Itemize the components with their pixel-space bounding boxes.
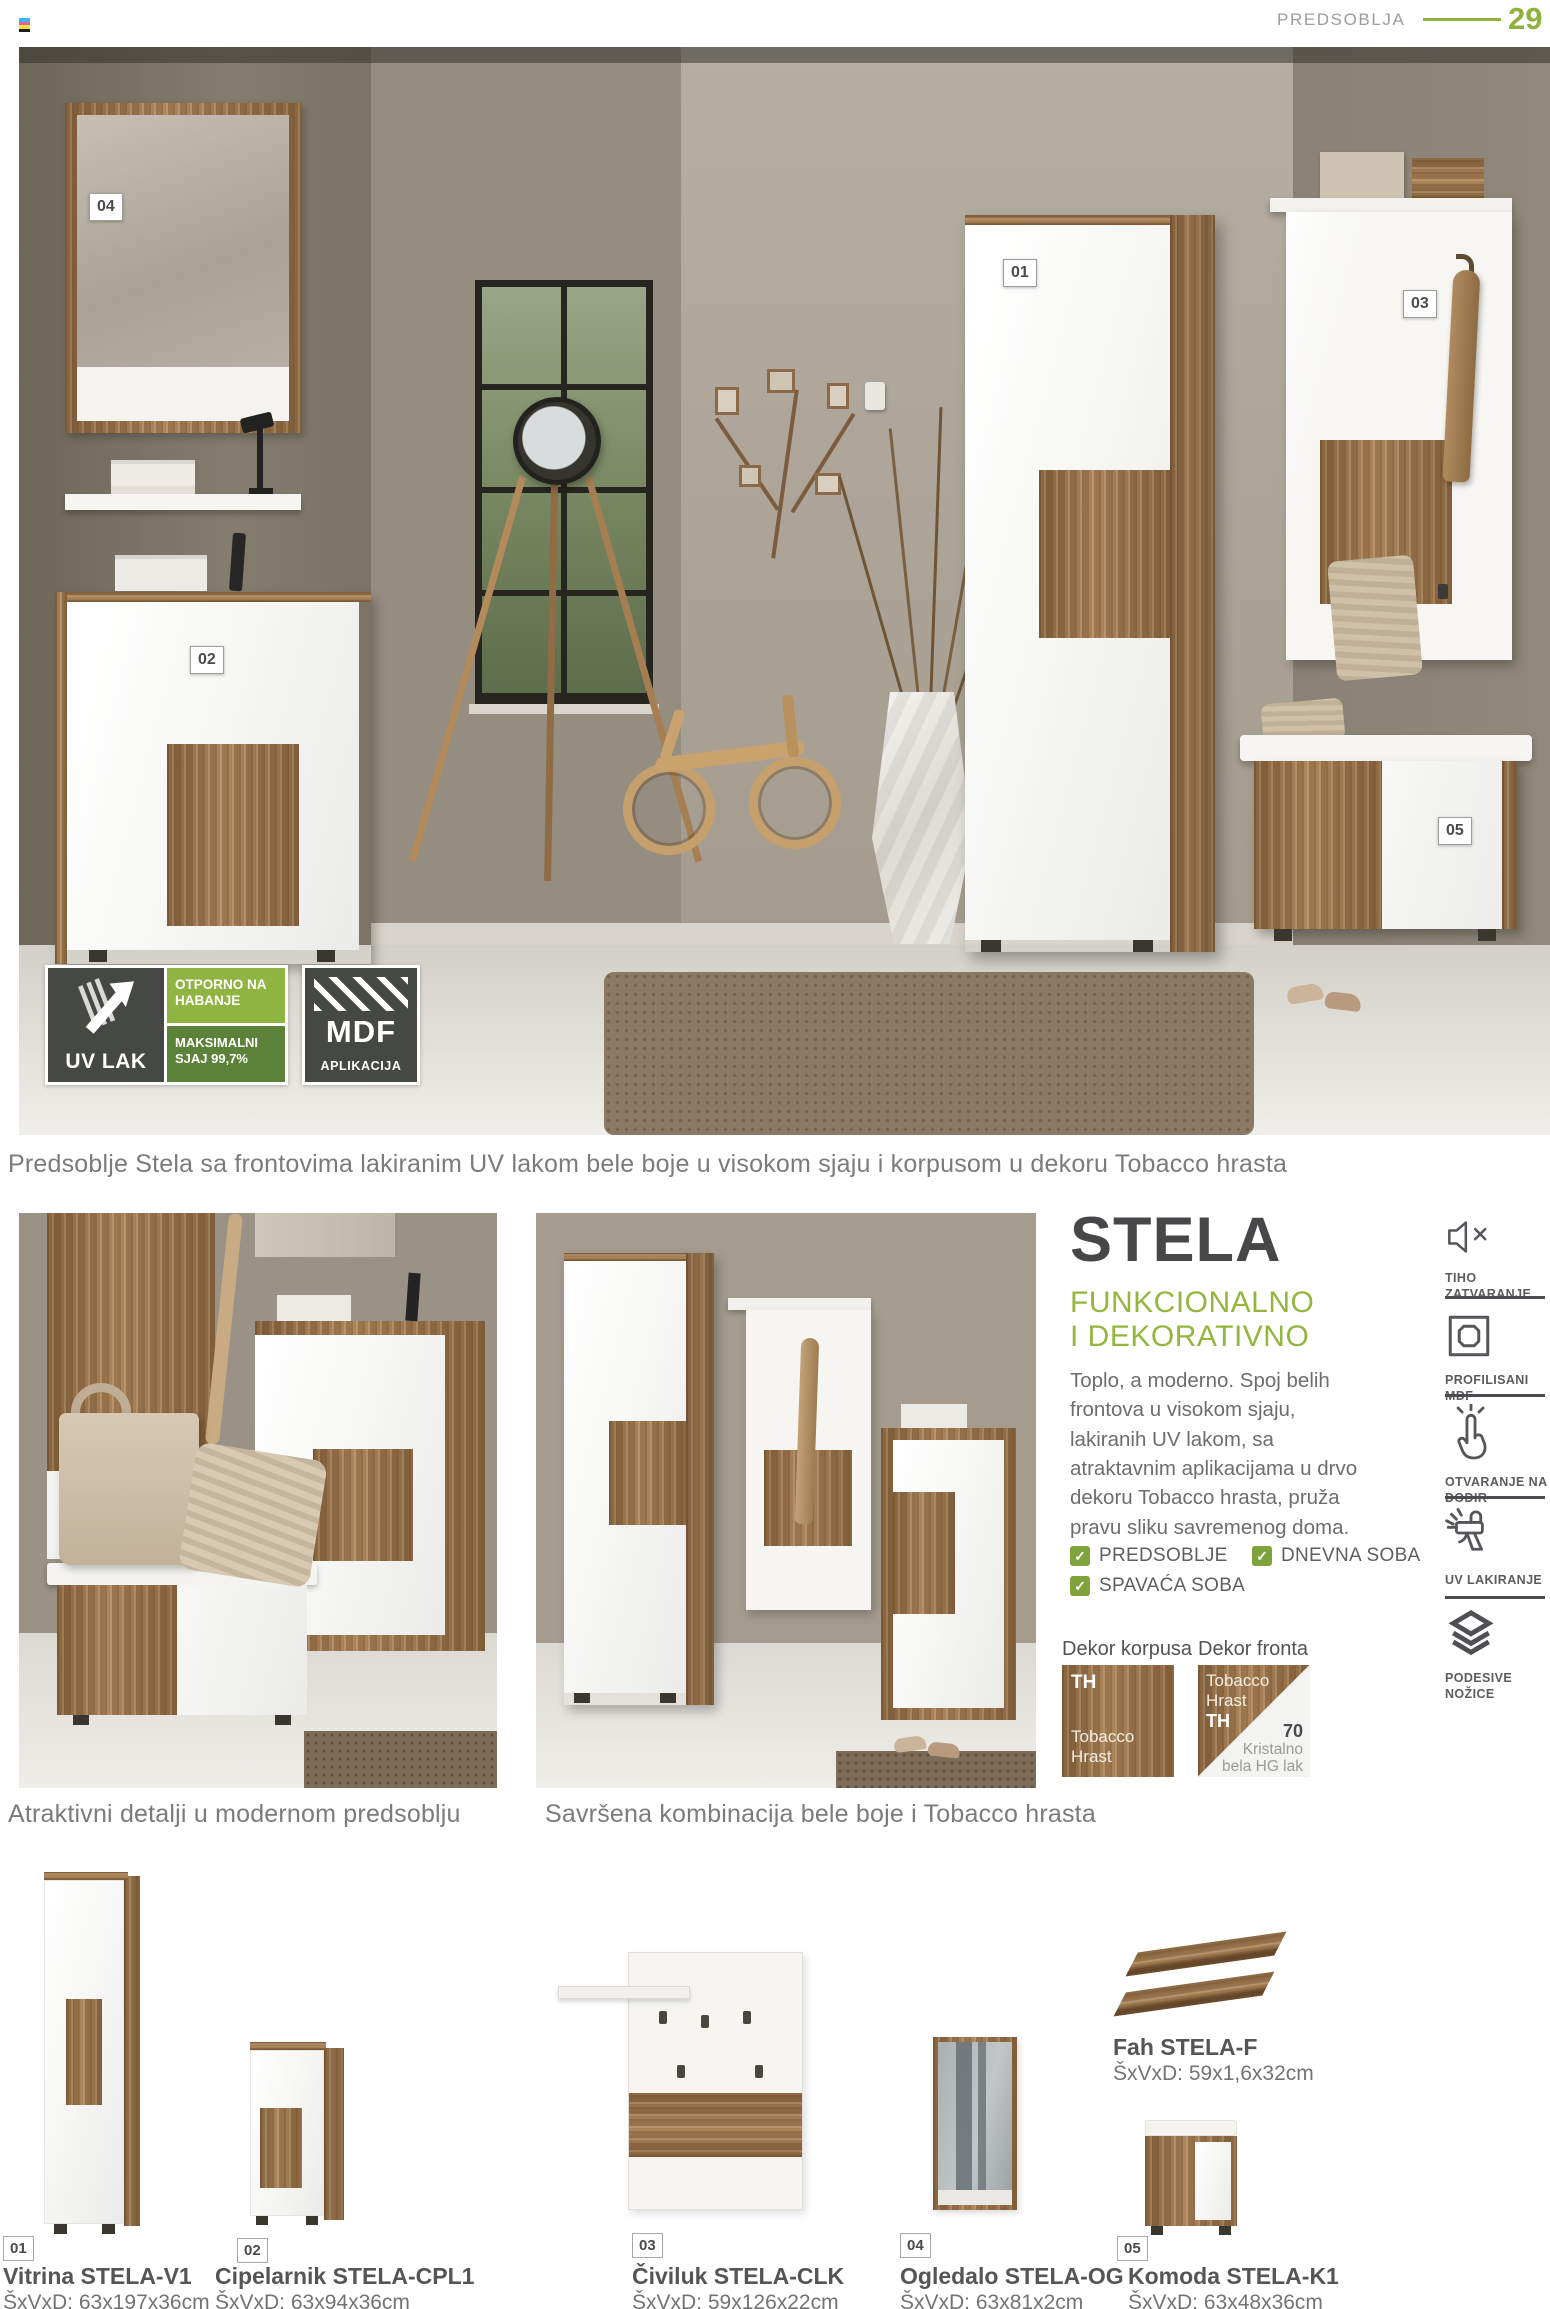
- dekor-fronta-heading: Dekor fronta: [1198, 1638, 1308, 1661]
- product-dims-fah: ŠxVxD: 59x1,6x32cm: [1113, 2062, 1314, 2086]
- room-predsoblje: ✓ PREDSOBLJE: [1070, 1545, 1228, 1567]
- product-dims: ŠxVxD: 63x197x36cm: [3, 2291, 210, 2309]
- photo-phone: [405, 1273, 420, 1322]
- spray-gun-icon: [1445, 1506, 1497, 1560]
- dekor-korpusa-swatch: TH Tobacco Hrast: [1062, 1665, 1174, 1777]
- vitrina-applique: [66, 1999, 102, 2105]
- cabinet-foot: [317, 950, 335, 962]
- desk-lamp-stem: [257, 425, 263, 491]
- civiluk-hook: [659, 2011, 667, 2024]
- photo-wardrobe-foot: [574, 1693, 590, 1703]
- feature-label: PODESIVE NOŽICE: [1445, 1670, 1549, 1703]
- wardrobe-foot: [1133, 940, 1153, 952]
- collection-subtitle-2: I DEKORATIVNO: [1070, 1320, 1309, 1354]
- hero-tag-03: 03: [1403, 290, 1437, 318]
- feature-adjustable-feet: PODESIVE NOŽICE: [1445, 1608, 1549, 1703]
- photo-bench-foot: [73, 1715, 89, 1725]
- mini-frame: [739, 465, 761, 487]
- light-switch: [865, 382, 885, 410]
- bench: [1240, 735, 1532, 960]
- mirror-glass: [77, 115, 289, 367]
- product-name: Čiviluk STELA-CLK: [632, 2263, 844, 2290]
- photo-bench: [47, 1563, 317, 1743]
- mirror-reflection-dark: [956, 2042, 972, 2205]
- room-label: PREDSOBLJE: [1099, 1545, 1228, 1567]
- bench-seat: [1240, 735, 1532, 761]
- korpus-name: Tobacco Hrast: [1071, 1727, 1151, 1766]
- desk-lamp-base: [249, 488, 273, 494]
- reg-black: [19, 29, 30, 33]
- mirror-reflection: [978, 2042, 986, 2205]
- mini-frame: [827, 383, 849, 409]
- product-image-ogledalo: [933, 2037, 1017, 2210]
- product-name: Ogledalo STELA-OG: [900, 2263, 1124, 2290]
- mirror-strip: [255, 1213, 395, 1257]
- cipelarnik-applique: [260, 2108, 302, 2188]
- feature-touch-opening: OTVARANJE NA DODIR: [1445, 1404, 1549, 1507]
- wall-tree-decor: [695, 369, 880, 569]
- window: [475, 280, 653, 704]
- bench-side: [1502, 761, 1518, 929]
- feature-separator: [1445, 1496, 1545, 1499]
- komoda-seat: [1145, 2120, 1237, 2136]
- cipelarnik-foot: [256, 2216, 268, 2225]
- dekor-fronta-swatch: Tobacco Hrast TH 70 Kristalno bela HG la…: [1198, 1665, 1310, 1777]
- civiluk-hook: [701, 2015, 709, 2028]
- gallery-caption-left: Atraktivni detalji u modernom predsoblju: [8, 1800, 461, 1829]
- branch: [715, 417, 780, 510]
- section-title: PREDSOBLJA: [1277, 10, 1405, 30]
- dekor-korpusa-heading: Dekor korpusa: [1062, 1638, 1192, 1661]
- rug: [604, 972, 1254, 1135]
- tripod-lamp-head: [513, 397, 601, 485]
- photo-small-cabinet: [881, 1428, 1016, 1720]
- hero-tag-05: 05: [1438, 817, 1472, 845]
- uv-lak-claims: OTPORNO NA HABANJE MAKSIMALNI SJAJ 99,7%: [167, 968, 285, 1082]
- catalog-page: PREDSOBLJA 29: [0, 0, 1550, 2309]
- fah-plank: [1126, 1932, 1287, 1977]
- civiluk-shelf: [558, 1986, 690, 1999]
- wardrobe-side: [1170, 215, 1215, 952]
- hero-tag-04: 04: [89, 193, 123, 221]
- wall-shelf: [65, 494, 301, 510]
- books-on-cabinet: [115, 555, 207, 591]
- room-dnevna-soba: ✓ DNEVNA SOBA: [1252, 1545, 1421, 1567]
- korpus-code: TH: [1071, 1672, 1096, 1694]
- uv-claim-2: MAKSIMALNI SJAJ 99,7%: [167, 1026, 285, 1082]
- hero-photo: 04 01 03 02 05 UV LAK OTPORNO NA HABANJE…: [19, 47, 1550, 1135]
- bench-body: [1254, 761, 1518, 929]
- wardrobe-top-edge: [965, 215, 1170, 225]
- mini-frame: [715, 387, 739, 415]
- ogledalo-glass: [938, 2042, 1012, 2205]
- product-name: Komoda STELA-K1: [1128, 2263, 1339, 2290]
- product-dims: ŠxVxD: 63x94x36cm: [215, 2291, 410, 2309]
- vitrina-foot: [54, 2224, 67, 2234]
- product-name: Cipelarnik STELA-CPL1: [215, 2263, 474, 2290]
- photo-books: [277, 1295, 351, 1321]
- product-dims: ŠxVxD: 59x126x22cm: [632, 2291, 839, 2309]
- fronta-bottom-name: Kristalno bela HG lak: [1211, 1741, 1303, 1775]
- storage-box-wood: [1412, 158, 1484, 198]
- bench-foot: [1274, 929, 1292, 941]
- tote-bag: [59, 1413, 199, 1565]
- vitrina-foot: [102, 2224, 115, 2234]
- room-label: SPAVAĆA SOBA: [1099, 1575, 1245, 1597]
- photo-rug: [304, 1731, 497, 1788]
- bike-wheel: [749, 757, 841, 849]
- product-image-komoda: [1143, 2120, 1239, 2238]
- mirror-frame: [65, 103, 301, 433]
- photo-bench-foot: [275, 1715, 291, 1725]
- photo-small-applique: [893, 1492, 955, 1614]
- mini-frame: [767, 369, 795, 393]
- cabinet-wood-applique: [167, 744, 299, 926]
- coat-hook: [1438, 584, 1448, 599]
- photo-cabinet-applique: [313, 1449, 413, 1561]
- profiled-mdf-icon: [1445, 1312, 1493, 1360]
- photo-wardrobe: [564, 1253, 714, 1705]
- komoda-foot: [1151, 2226, 1163, 2235]
- gallery-photo-left: [19, 1213, 497, 1788]
- cabinet-top-edge: [55, 592, 371, 602]
- uv-lak-box: UV LAK: [48, 968, 164, 1082]
- touch-open-icon: [1445, 1404, 1497, 1462]
- check-icon: ✓: [1070, 1576, 1090, 1596]
- fah-plank: [1114, 1972, 1275, 2017]
- collection-title: STELA: [1070, 1204, 1282, 1276]
- photo-wardrobe-side: [686, 1253, 714, 1705]
- cipelarnik-foot: [306, 2216, 318, 2225]
- photo-bench-applique: [57, 1585, 177, 1715]
- product-name: Vitrina STELA-V1: [3, 2263, 192, 2290]
- feature-separator: [1445, 1596, 1545, 1599]
- fronta-bottom-code: 70: [1283, 1721, 1303, 1742]
- photo-small-books: [901, 1404, 967, 1428]
- hero-tag-01: 01: [1003, 259, 1037, 287]
- photo-wardrobe-top: [564, 1253, 686, 1261]
- photo-panel-shelf: [728, 1298, 871, 1310]
- wardrobe-wood-applique: [1039, 470, 1170, 638]
- uv-claim-1: OTPORNO NA HABANJE: [167, 968, 285, 1023]
- product-tag-03: 03: [632, 2233, 663, 2258]
- mdf-stripes: [314, 977, 408, 1011]
- floor-vase: [872, 692, 972, 944]
- feature-label: PROFILISANI MDF: [1445, 1372, 1549, 1405]
- vitrina-side: [124, 1876, 140, 2226]
- collection-subtitle-1: FUNKCIONALNO: [1070, 1286, 1314, 1320]
- fronta-top-code: TH: [1206, 1711, 1230, 1732]
- uv-arrow-icon: [71, 976, 141, 1038]
- product-tag-05: 05: [1117, 2236, 1148, 2261]
- feature-uv-lacquering: UV LAKIRANJE: [1445, 1506, 1549, 1588]
- vitrina-top: [44, 1872, 128, 1880]
- cipelarnik-side: [324, 2048, 344, 2220]
- room-spavaca-soba: ✓ SPAVAĆA SOBA: [1070, 1575, 1245, 1597]
- mdf-badge: MDF APLIKACIJA: [302, 965, 420, 1085]
- storage-box: [1320, 152, 1404, 198]
- civiluk-wood-band: [629, 2093, 802, 2157]
- coat-panel: [1270, 150, 1526, 710]
- mdf-box: MDF APLIKACIJA: [305, 968, 417, 1082]
- product-name-fah: Fah STELA-F: [1113, 2034, 1257, 2061]
- photo-rug: [836, 1751, 1036, 1788]
- page-number: 29: [1508, 1, 1542, 37]
- feature-profiled-mdf: PROFILISANI MDF: [1445, 1312, 1549, 1405]
- books-stack: [111, 460, 195, 494]
- silent-close-icon: [1445, 1216, 1491, 1258]
- feature-separator: [1445, 1296, 1545, 1299]
- feature-label: UV LAKIRANJE: [1445, 1572, 1549, 1588]
- check-icon: ✓: [1252, 1546, 1272, 1566]
- cabinet-side: [55, 592, 67, 964]
- komoda-door: [1195, 2142, 1231, 2220]
- check-icon: ✓: [1070, 1546, 1090, 1566]
- civiluk-hook: [743, 2011, 751, 2024]
- room-label: DNEVNA SOBA: [1281, 1545, 1421, 1567]
- feature-separator: [1445, 1394, 1545, 1397]
- wardrobe-foot: [981, 940, 1001, 952]
- hero-tag-02: 02: [190, 646, 224, 674]
- window-sill: [469, 704, 659, 714]
- product-dims: ŠxVxD: 63x48x36cm: [1128, 2291, 1323, 2309]
- mdf-small-label: APLIKACIJA: [305, 1059, 417, 1073]
- hero-caption: Predsoblje Stela sa frontovima lakiranim…: [8, 1150, 1408, 1179]
- photo-panel: [746, 1268, 871, 1613]
- product-tag-04: 04: [900, 2233, 931, 2258]
- feature-label: OTVARANJE NA DODIR: [1445, 1474, 1549, 1507]
- print-registration-mark: [19, 18, 30, 33]
- branch: [771, 390, 799, 559]
- product-tag-01: 01: [3, 2236, 34, 2261]
- cabinet-foot: [89, 950, 107, 962]
- product-image-vitrina: [40, 1872, 140, 2234]
- komoda-foot: [1219, 2226, 1231, 2235]
- civiluk-hook: [755, 2065, 763, 2078]
- photo-wardrobe-applique: [609, 1421, 686, 1525]
- layers-icon: [1445, 1608, 1497, 1658]
- mirror-reflection-floor: [938, 2190, 1012, 2205]
- product-image-fah: [1113, 1937, 1283, 2027]
- product-dims: ŠxVxD: 63x81x2cm: [900, 2291, 1083, 2309]
- mirror-white-band: [77, 367, 289, 421]
- cipelarnik-top: [250, 2042, 326, 2050]
- bike-wheel: [623, 763, 715, 855]
- collection-description: Toplo, a moderno. Spoj belih frontova u …: [1070, 1366, 1372, 1542]
- gallery-photo-right: [536, 1213, 1036, 1788]
- uv-lak-badge: UV LAK OTPORNO NA HABANJE MAKSIMALNI SJA…: [45, 965, 288, 1085]
- bench-foot: [1478, 929, 1496, 941]
- gallery-caption-right: Savršena kombinacija bele boje i Tobacco…: [545, 1800, 1096, 1829]
- photo-wardrobe-foot: [660, 1693, 676, 1703]
- hanging-knit: [1327, 554, 1423, 681]
- uv-lak-label: UV LAK: [48, 1050, 164, 1074]
- product-image-cipelarnik: [248, 2042, 344, 2226]
- ceiling-shadow: [19, 47, 1550, 63]
- header-rule: [1423, 18, 1501, 21]
- knit-throw: [178, 1441, 328, 1588]
- mdf-big-label: MDF: [305, 1014, 417, 1050]
- panel-shelf: [1270, 198, 1512, 212]
- fronta-top-name: Tobacco Hrast: [1206, 1671, 1276, 1710]
- wardrobe: [965, 215, 1215, 952]
- feature-silent-closing: TIHO ZATVARANJE: [1445, 1216, 1549, 1303]
- bench-wood-applique: [1254, 761, 1382, 929]
- product-image-civiluk: [558, 1950, 808, 2212]
- civiluk-hook: [677, 2065, 685, 2078]
- product-tag-02: 02: [237, 2238, 268, 2263]
